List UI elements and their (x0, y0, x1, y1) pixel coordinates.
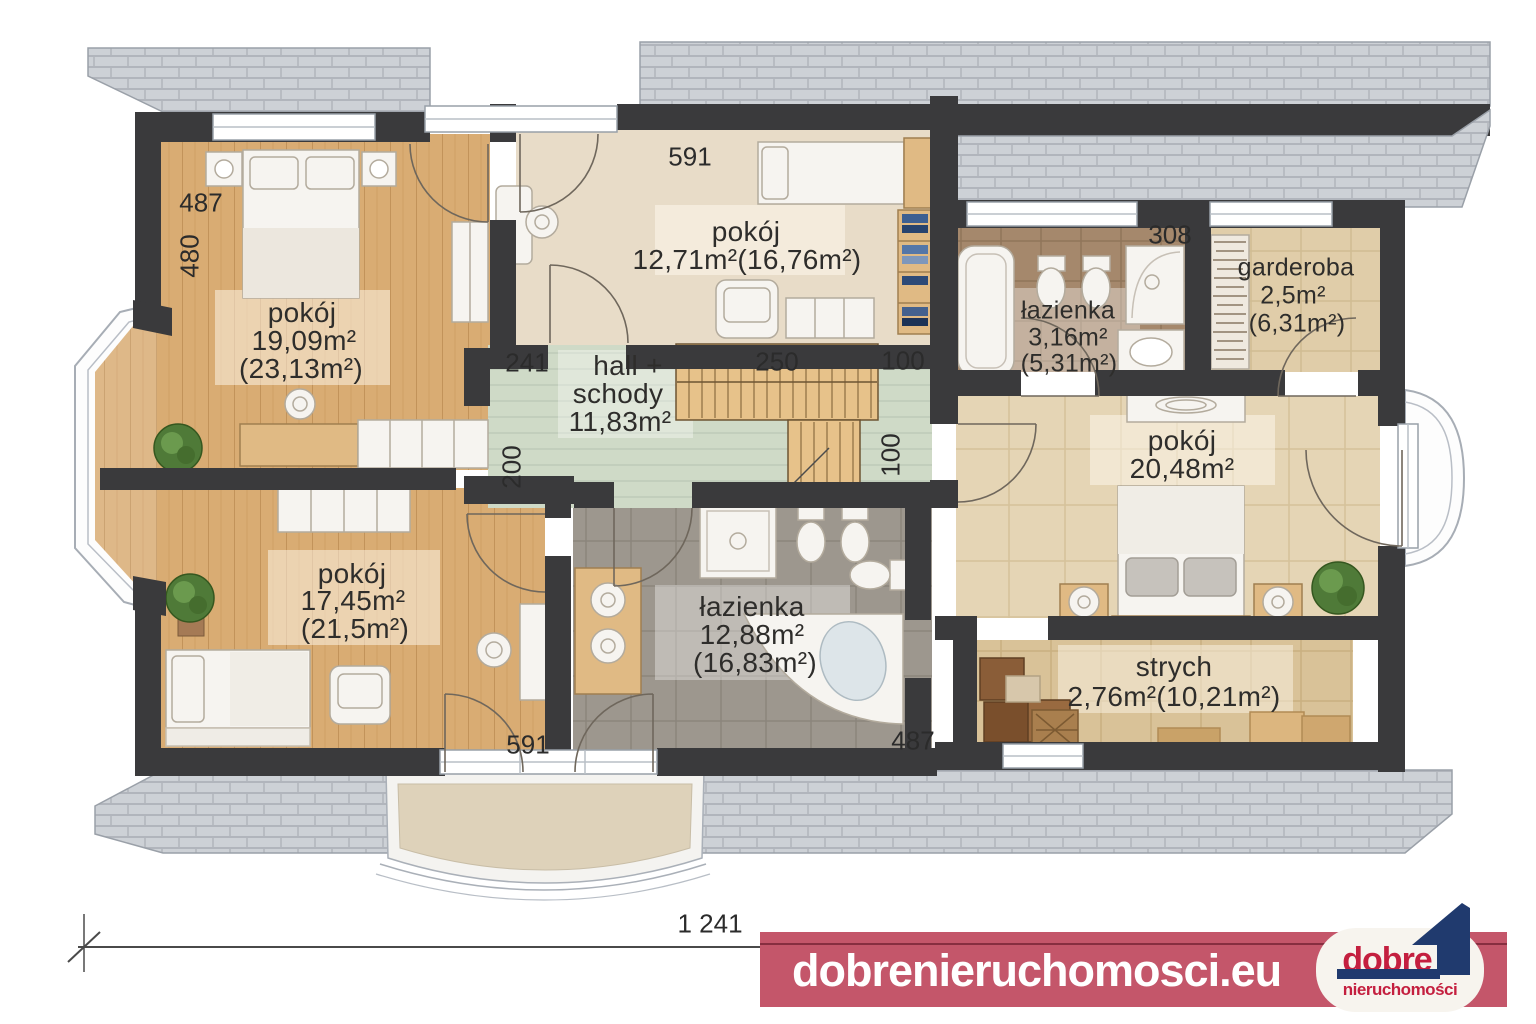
pillow (762, 147, 788, 199)
shower (700, 504, 776, 578)
bath-top-area-total: (5,31m²) (1021, 350, 1118, 379)
window (1210, 202, 1332, 226)
website-url: dobrenieruchomosci.eu (792, 932, 1281, 1007)
dresser (786, 298, 874, 338)
toilet (842, 506, 868, 520)
bath-bottom-area-total: (16,83m²) (693, 647, 817, 679)
window (213, 114, 375, 140)
window (425, 106, 617, 132)
headboard-cabinet (904, 138, 932, 208)
hall-area: 11,83m² (569, 406, 672, 438)
room-tl-area-total: (23,13m²) (239, 353, 363, 385)
window (1398, 424, 1418, 548)
dim-corridor-top: 100 (881, 346, 924, 377)
cabinet (358, 420, 488, 468)
bidet (798, 506, 824, 520)
floor-plan-drawing (0, 0, 1536, 1024)
wardrobe-area: 2,5m² (1260, 282, 1325, 311)
room-bl-area-total: (21,5m²) (301, 613, 409, 645)
pillow (1184, 558, 1236, 596)
attic-name: strych (1136, 651, 1212, 683)
logo-house-icon (1330, 895, 1480, 1015)
dim-building-width: 1 241 (677, 909, 742, 940)
pillow (1126, 558, 1178, 596)
pillow (250, 157, 298, 189)
dim-hall-left: 241 (505, 348, 548, 379)
chair (477, 633, 511, 667)
stool (285, 389, 315, 419)
attic-area: 2,76m²(10,21m²) (1067, 681, 1280, 713)
bath-top-area: 3,16m² (1028, 324, 1108, 353)
room-right-area: 20,48m² (1130, 453, 1235, 485)
window (967, 202, 1137, 226)
dim-room-tl-width: 487 (179, 188, 222, 219)
dim-bath-bottom-width: 487 (891, 726, 934, 757)
box (984, 702, 1032, 742)
window (1003, 744, 1083, 768)
balcony (376, 770, 710, 900)
dim-bath-top: 308 (1148, 220, 1191, 251)
room-tm-area: 12,71m²(16,76m²) (633, 244, 862, 276)
dim-hall-depth: 200 (497, 445, 528, 488)
shower (1126, 246, 1184, 324)
toilet (890, 560, 906, 590)
dim-room-bl-width: 591 (506, 730, 549, 761)
pillow (172, 656, 204, 722)
dim-room-tm-width: 591 (668, 142, 711, 173)
floor-plan-page: 487 480 pokój 19,09m² (23,13m²) 591 pokó… (0, 0, 1536, 1024)
wardrobe-area-total: (6,31m²) (1249, 310, 1346, 339)
left-bay-window (75, 302, 161, 612)
plant (1312, 562, 1364, 614)
dim-stairs: 250 (755, 347, 798, 378)
dim-corridor-right: 100 (876, 433, 907, 476)
bath-top-name: łazienka (1021, 297, 1115, 326)
dim-room-tl-height: 480 (175, 234, 206, 277)
plant (154, 424, 202, 472)
wardrobe-name: garderoba (1238, 254, 1355, 283)
pillow (306, 157, 354, 189)
sideboard (240, 424, 358, 466)
